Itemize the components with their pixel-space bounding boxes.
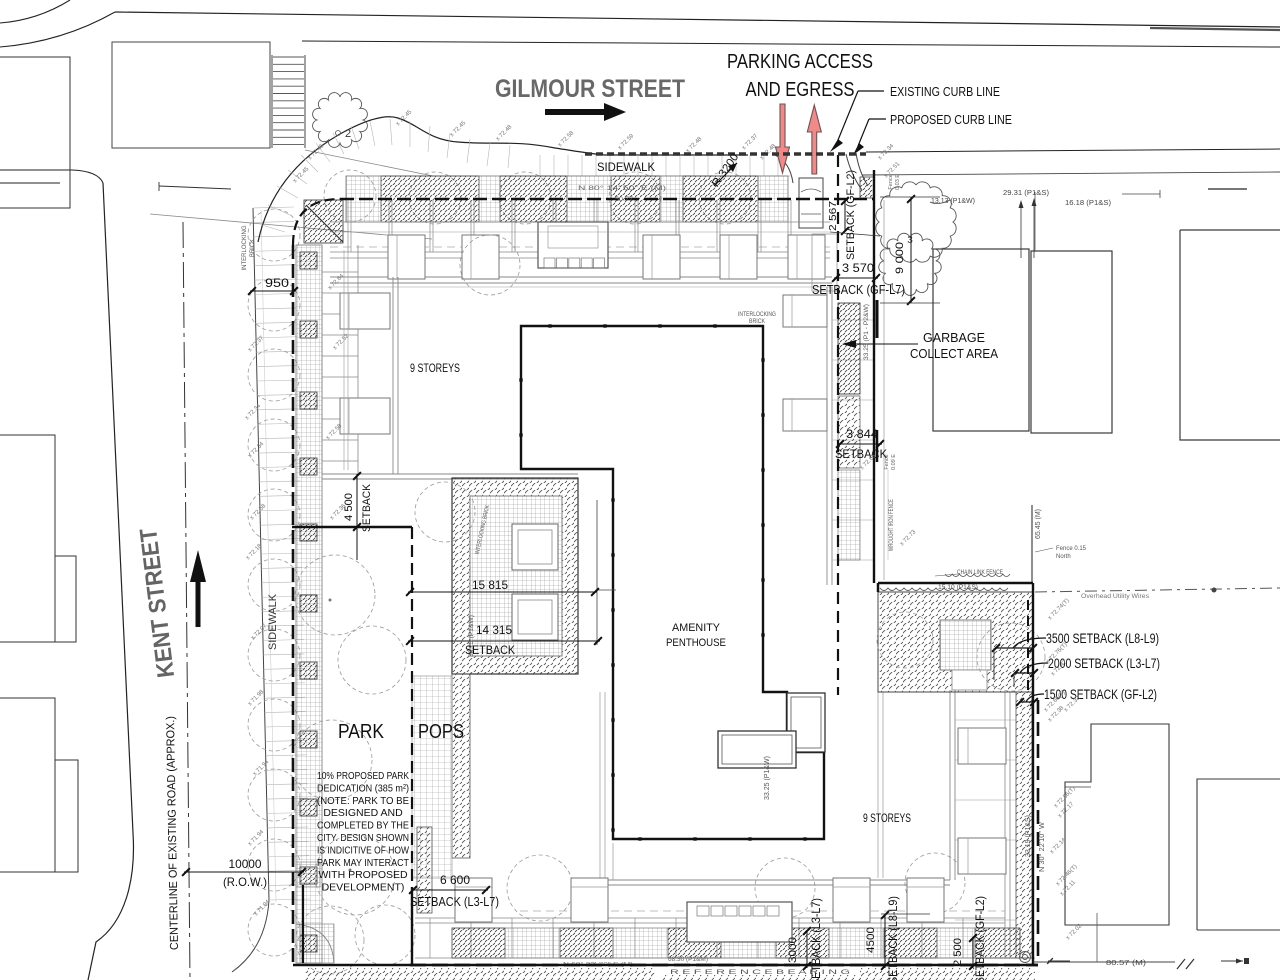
svg-text:DESIGNED AND: DESIGNED AND [323,807,403,819]
svg-text:0.09 E: 0.09 E [891,454,897,470]
svg-text:WROUGHT IRON FENCE: WROUGHT IRON FENCE [889,499,895,551]
svg-text:50.77: 50.77 [615,196,633,203]
svg-text:3 570: 3 570 [842,261,874,275]
svg-text:PARKING ACCESS: PARKING ACCESS [727,51,873,73]
svg-text:North: North [1056,554,1071,560]
svg-text:SETBACK (L3-L7): SETBACK (L3-L7) [809,898,823,980]
svg-text:SETBACK (L8-L9): SETBACK (L8-L9) [886,896,900,980]
svg-text:AMENITY: AMENITY [672,622,721,634]
svg-text:COLLECT AREA: COLLECT AREA [910,347,999,361]
svg-text:15 815: 15 815 [472,578,508,592]
svg-text:AND EGRESS: AND EGRESS [746,79,855,101]
svg-text:DEDICATION (385 m²): DEDICATION (385 m²) [317,782,409,794]
svg-text:SETBACK (L3-L7): SETBACK (L3-L7) [410,895,499,909]
svg-text:33.19 (P1&S): 33.19 (P1&S) [1025,815,1032,857]
svg-text:EXISTING CURB LINE: EXISTING CURB LINE [890,84,1000,99]
svg-text:BRICK: BRICK [749,319,765,325]
svg-text:SETBACK: SETBACK [835,447,887,461]
svg-text:CITY. DESIGN SHOWN: CITY. DESIGN SHOWN [317,832,409,844]
svg-text:INTERLOCKING: INTERLOCKING [738,312,776,318]
svg-text:(R.O.W.): (R.O.W.) [223,875,267,889]
svg-text:950: 950 [265,276,289,290]
svg-text:9 STOREYS: 9 STOREYS [410,361,460,375]
svg-text:PARK: PARK [338,721,385,743]
svg-text:N 30° 22'10" W: N 30° 22'10" W [1038,822,1046,872]
svg-text:(NOTE: PARK TO BE: (NOTE: PARK TO BE [317,795,409,807]
svg-text:IS INDICITIVE OF HOW: IS INDICITIVE OF HOW [317,844,409,856]
svg-text:3 844: 3 844 [846,427,878,441]
svg-text:N 80° 14' 50" E (M): N 80° 14' 50" E (M) [578,184,666,192]
svg-text:65.45 (M): 65.45 (M) [1035,509,1042,539]
svg-text:80.57 (M): 80.57 (M) [1106,958,1147,967]
svg-text:9 STOREYS: 9 STOREYS [863,811,911,825]
svg-text:POPS: POPS [418,721,464,743]
svg-text:COMPLETED BY THE: COMPLETED BY THE [317,820,409,832]
svg-text:BRICK: BRICK [250,239,256,257]
svg-text:2 567: 2 567 [827,201,839,231]
svg-text:WITH PROPOSED: WITH PROPOSED [318,869,408,881]
svg-text:Overhead Utility Wires: Overhead Utility Wires [1081,593,1150,600]
svg-text:4500: 4500 [865,927,877,953]
svg-text:10% PROPOSED PARK: 10% PROPOSED PARK [317,770,409,782]
svg-text:16.18 (P1&S): 16.18 (P1&S) [1065,198,1112,207]
svg-text:68.30 (P1&M): 68.30 (P1&M) [668,957,708,963]
svg-text:SIDEWALK: SIDEWALK [597,162,655,174]
svg-text:Fence 0.15: Fence 0.15 [1056,546,1087,552]
svg-text:6 600: 6 600 [440,873,470,887]
svg-text:PENTHOUSE: PENTHOUSE [666,637,726,649]
svg-text:33.25 (P1&W): 33.25 (P1&W) [764,756,771,800]
svg-text:SETBACK: SETBACK [361,483,373,532]
svg-text:SIDEWALK: SIDEWALK [267,593,279,650]
svg-text:PROPOSED CURB LINE: PROPOSED CURB LINE [890,112,1012,127]
svg-text:R E F E R E N C E B E A R: R E F E R E N C E B E A R I N G [670,970,851,976]
svg-text:29.31 (P1&S): 29.31 (P1&S) [1003,188,1050,197]
svg-text:2: 2 [345,128,351,140]
svg-text:SETBACK (GF-L2): SETBACK (GF-L2) [845,170,857,260]
svg-text:GILMOUR STREET: GILMOUR STREET [495,75,685,103]
svg-text:SETBACK (GF-L7): SETBACK (GF-L7) [812,283,905,297]
svg-text:2 500: 2 500 [952,938,964,966]
svg-text:CHAIN LINK FENCE: CHAIN LINK FENCE [957,570,1003,576]
svg-text:33.25 (P1 - P2&W): 33.25 (P1 - P2&W) [863,304,870,360]
svg-text:15.10 (P1&S): 15.10 (P1&S) [938,584,978,591]
svg-text:GARBAGE: GARBAGE [923,331,985,345]
svg-text:14 315: 14 315 [476,623,512,637]
svg-text:3000: 3000 [787,937,799,963]
svg-text:3: 3 [907,235,913,246]
svg-text:33.25 (P1&W): 33.25 (P1&W) [468,615,475,657]
svg-text:INTERLOCKING: INTERLOCKING [242,225,248,270]
svg-text:PARK MAY INTERACT: PARK MAY INTERACT [317,857,409,869]
svg-text:10000: 10000 [229,857,262,871]
svg-text:0.03 E: 0.03 E [895,174,901,190]
svg-text:SETBACK (GF-L2): SETBACK (GF-L2) [973,896,987,980]
svg-text:DEVELOPMENT): DEVELOPMENT) [322,882,405,894]
svg-text:9 000: 9 000 [894,242,906,274]
